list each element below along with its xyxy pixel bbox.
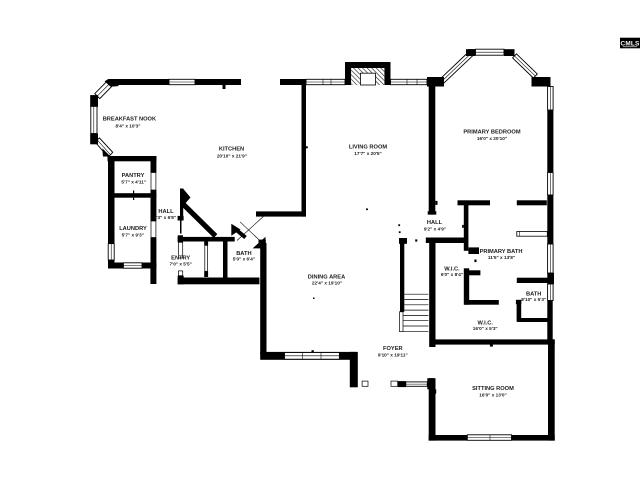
svg-text:LIVING ROOM: LIVING ROOM [349,145,387,151]
svg-text:16'0" x 5'3": 16'0" x 5'3" [473,326,498,331]
svg-text:16'0" x 20'10": 16'0" x 20'10" [477,136,507,141]
svg-text:8'4" x 10'3": 8'4" x 10'3" [116,123,141,128]
svg-text:3'3" x 6'8": 3'3" x 6'8" [154,215,176,220]
svg-text:5'0" x 6'4": 5'0" x 6'4" [233,257,255,262]
svg-text:22'4" x 19'10": 22'4" x 19'10" [312,281,342,286]
svg-text:7'0" x 5'5": 7'0" x 5'5" [170,261,192,266]
svg-text:PRIMARY BEDROOM: PRIMARY BEDROOM [463,130,520,136]
svg-text:KITCHEN: KITCHEN [219,147,244,153]
svg-text:16'0" x 13'0": 16'0" x 13'0" [479,393,507,398]
svg-text:6'0" x 8'4": 6'0" x 8'4" [441,272,463,277]
svg-text:HALL: HALL [427,220,443,226]
svg-text:PANTRY: PANTRY [122,173,145,179]
svg-text:11'5" x 13'8": 11'5" x 13'8" [488,255,515,260]
svg-text:9'10" x 19'11": 9'10" x 19'11" [378,353,408,358]
svg-text:17'7" x 20'5": 17'7" x 20'5" [354,151,382,156]
svg-text:8'10" x 5'3": 8'10" x 5'3" [521,297,546,302]
svg-text:BREAKFAST NOOK: BREAKFAST NOOK [103,117,157,123]
svg-text:5'7" x 9'3": 5'7" x 9'3" [122,232,144,237]
svg-text:FOYER: FOYER [383,346,403,352]
svg-text:LAUNDRY: LAUNDRY [119,226,147,232]
svg-text:9'2" x 4'9": 9'2" x 4'9" [424,227,446,232]
svg-text:20'10" x 21'9": 20'10" x 21'9" [217,153,247,158]
svg-text:SITTING ROOM: SITTING ROOM [472,386,514,392]
svg-text:5'7" x 4'11": 5'7" x 4'11" [121,179,146,184]
